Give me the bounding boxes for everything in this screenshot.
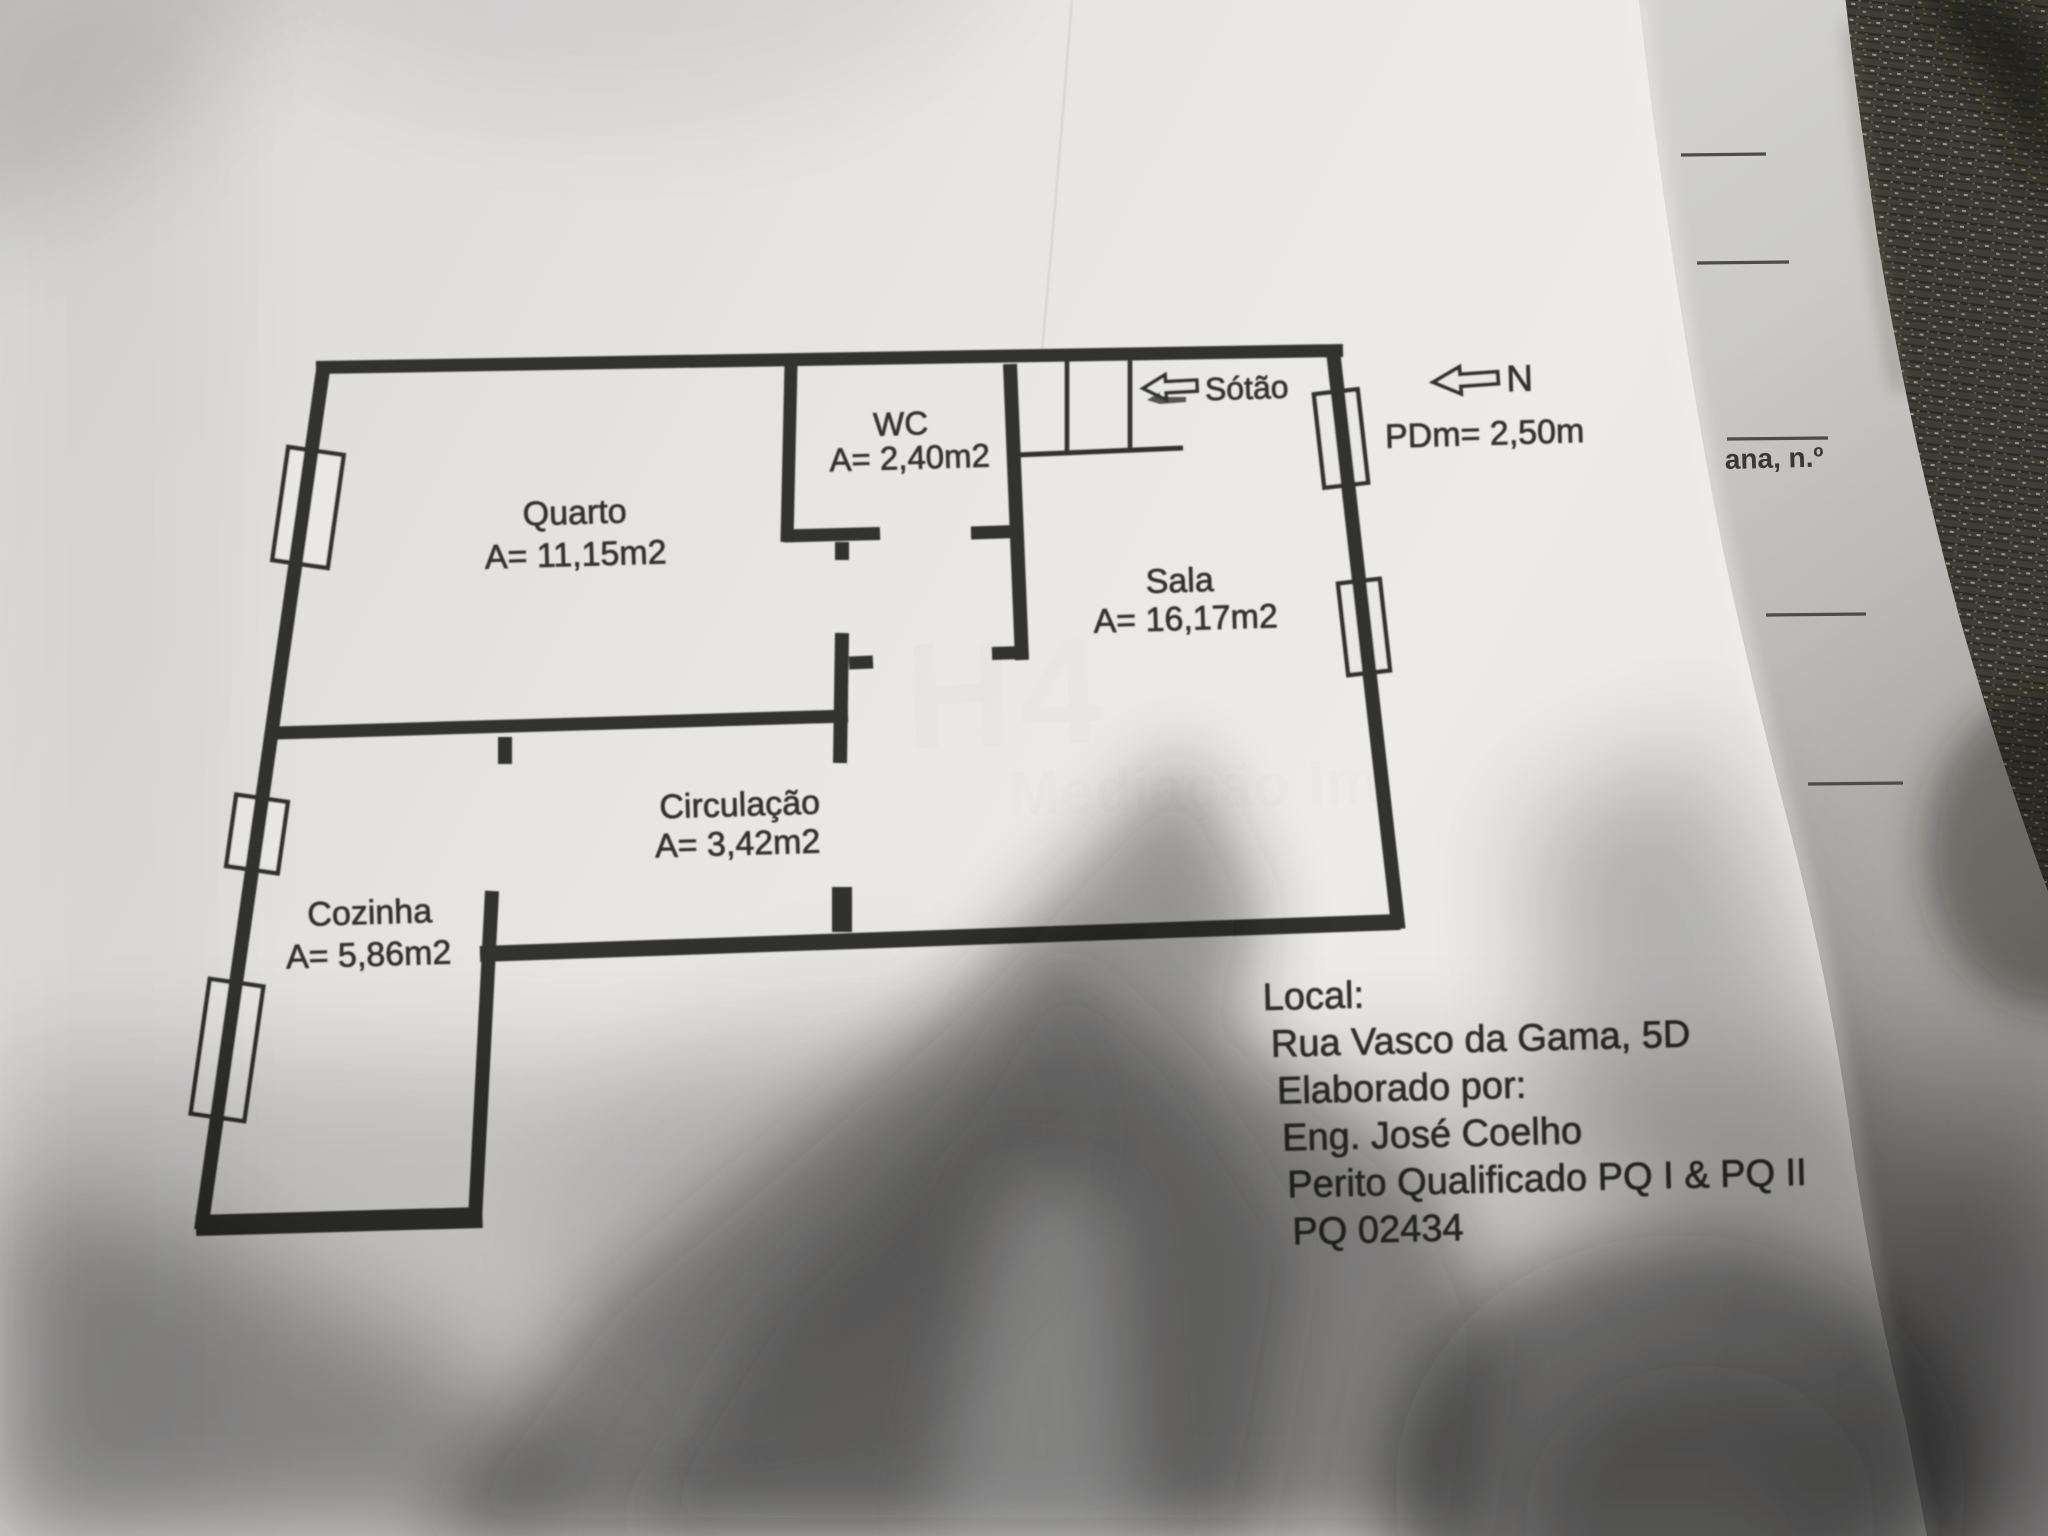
svg-text:Sótão: Sótão (1204, 369, 1289, 407)
svg-text:A= 16,17m2: A= 16,17m2 (1093, 597, 1278, 640)
svg-text:Sala: Sala (1145, 561, 1214, 601)
svg-text:A= 11,15m2: A= 11,15m2 (484, 533, 667, 576)
svg-text:A= 2,40m2: A= 2,40m2 (829, 437, 991, 479)
svg-text:Quarto: Quarto (522, 492, 627, 533)
svg-text:ana, n.º: ana, n.º (1724, 441, 1824, 475)
svg-text:N: N (1506, 358, 1534, 400)
svg-text:Circulação: Circulação (659, 784, 821, 827)
svg-text:Local:: Local: (1262, 975, 1364, 1019)
svg-text:Cozinha: Cozinha (307, 892, 433, 934)
svg-text:H4: H4 (902, 605, 1111, 780)
svg-text:PDm= 2,50m: PDm= 2,50m (1384, 412, 1584, 456)
svg-text:A= 3,42m2: A= 3,42m2 (654, 823, 820, 866)
svg-text:A= 5,86m2: A= 5,86m2 (285, 934, 451, 977)
svg-text:WC: WC (873, 404, 929, 443)
